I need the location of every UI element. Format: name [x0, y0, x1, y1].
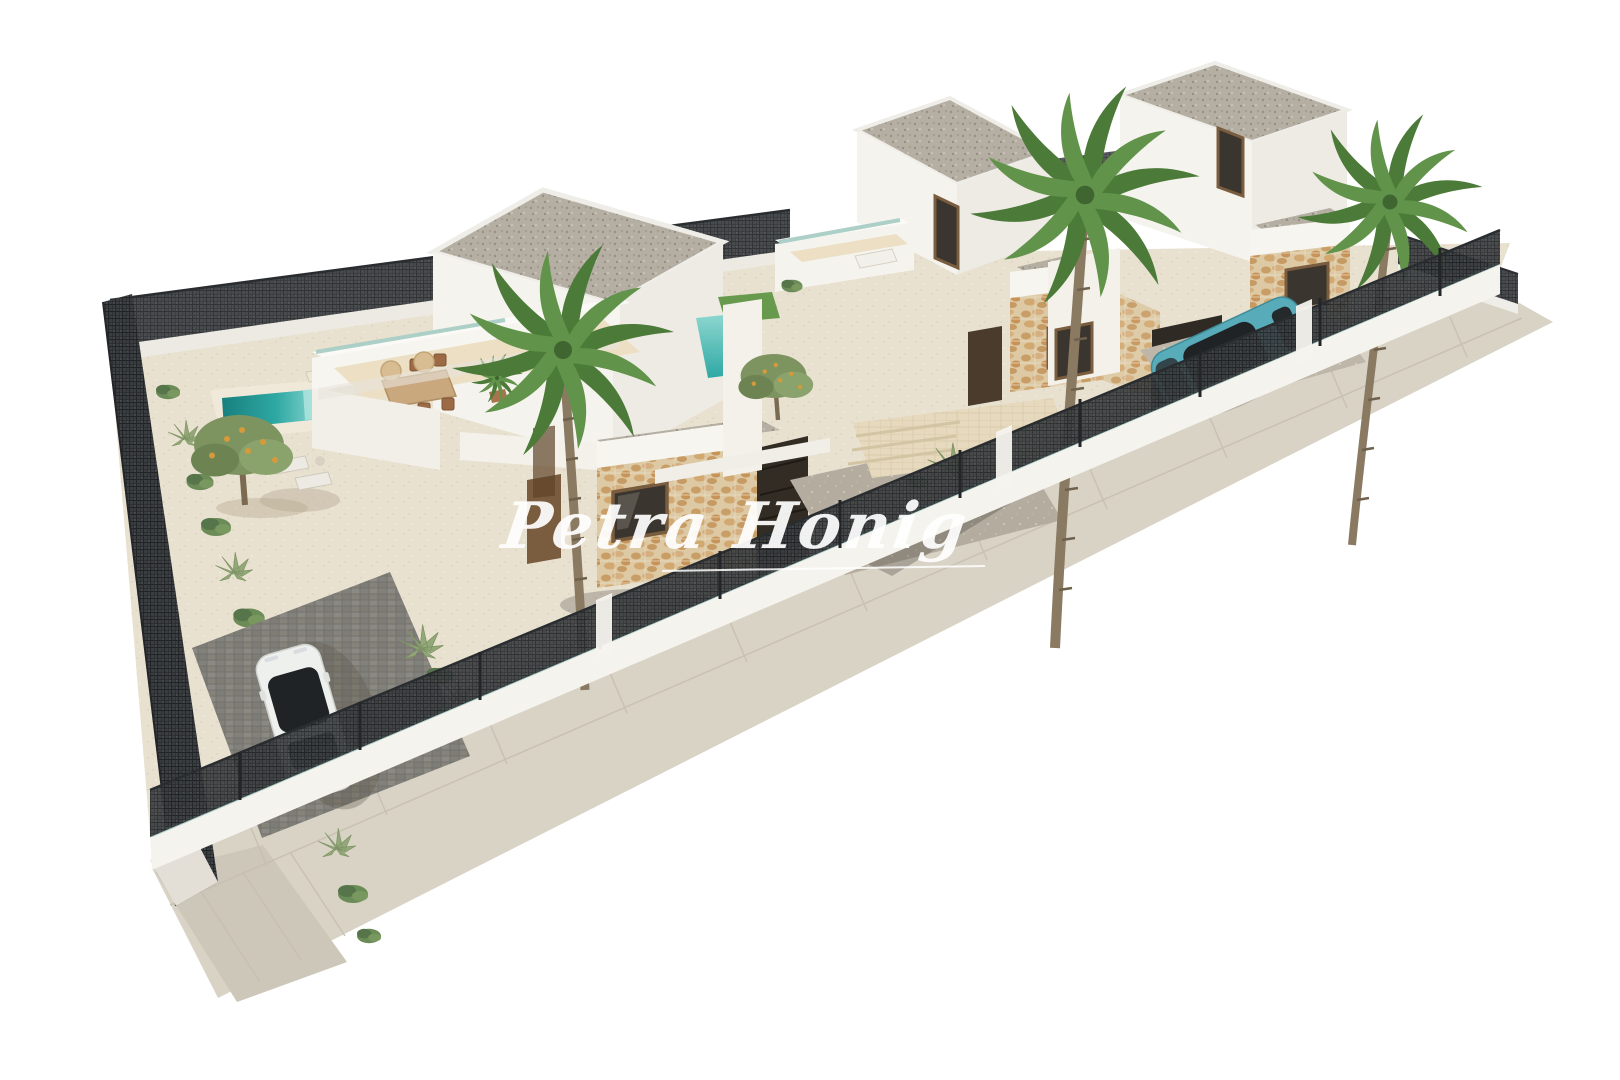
architectural-render: Petra Honig	[0, 0, 1620, 1080]
watermark-text: Petra Honig	[496, 489, 974, 564]
wall-step	[996, 425, 1012, 491]
entrance-door	[968, 326, 1002, 406]
side-table	[315, 456, 325, 466]
tall-window	[935, 196, 958, 268]
wall-step	[1296, 299, 1312, 365]
render-canvas: Petra Honig	[0, 0, 1620, 1080]
tall-window	[1218, 128, 1243, 196]
watermark: Petra Honig	[496, 489, 985, 571]
wall-step	[596, 593, 612, 659]
